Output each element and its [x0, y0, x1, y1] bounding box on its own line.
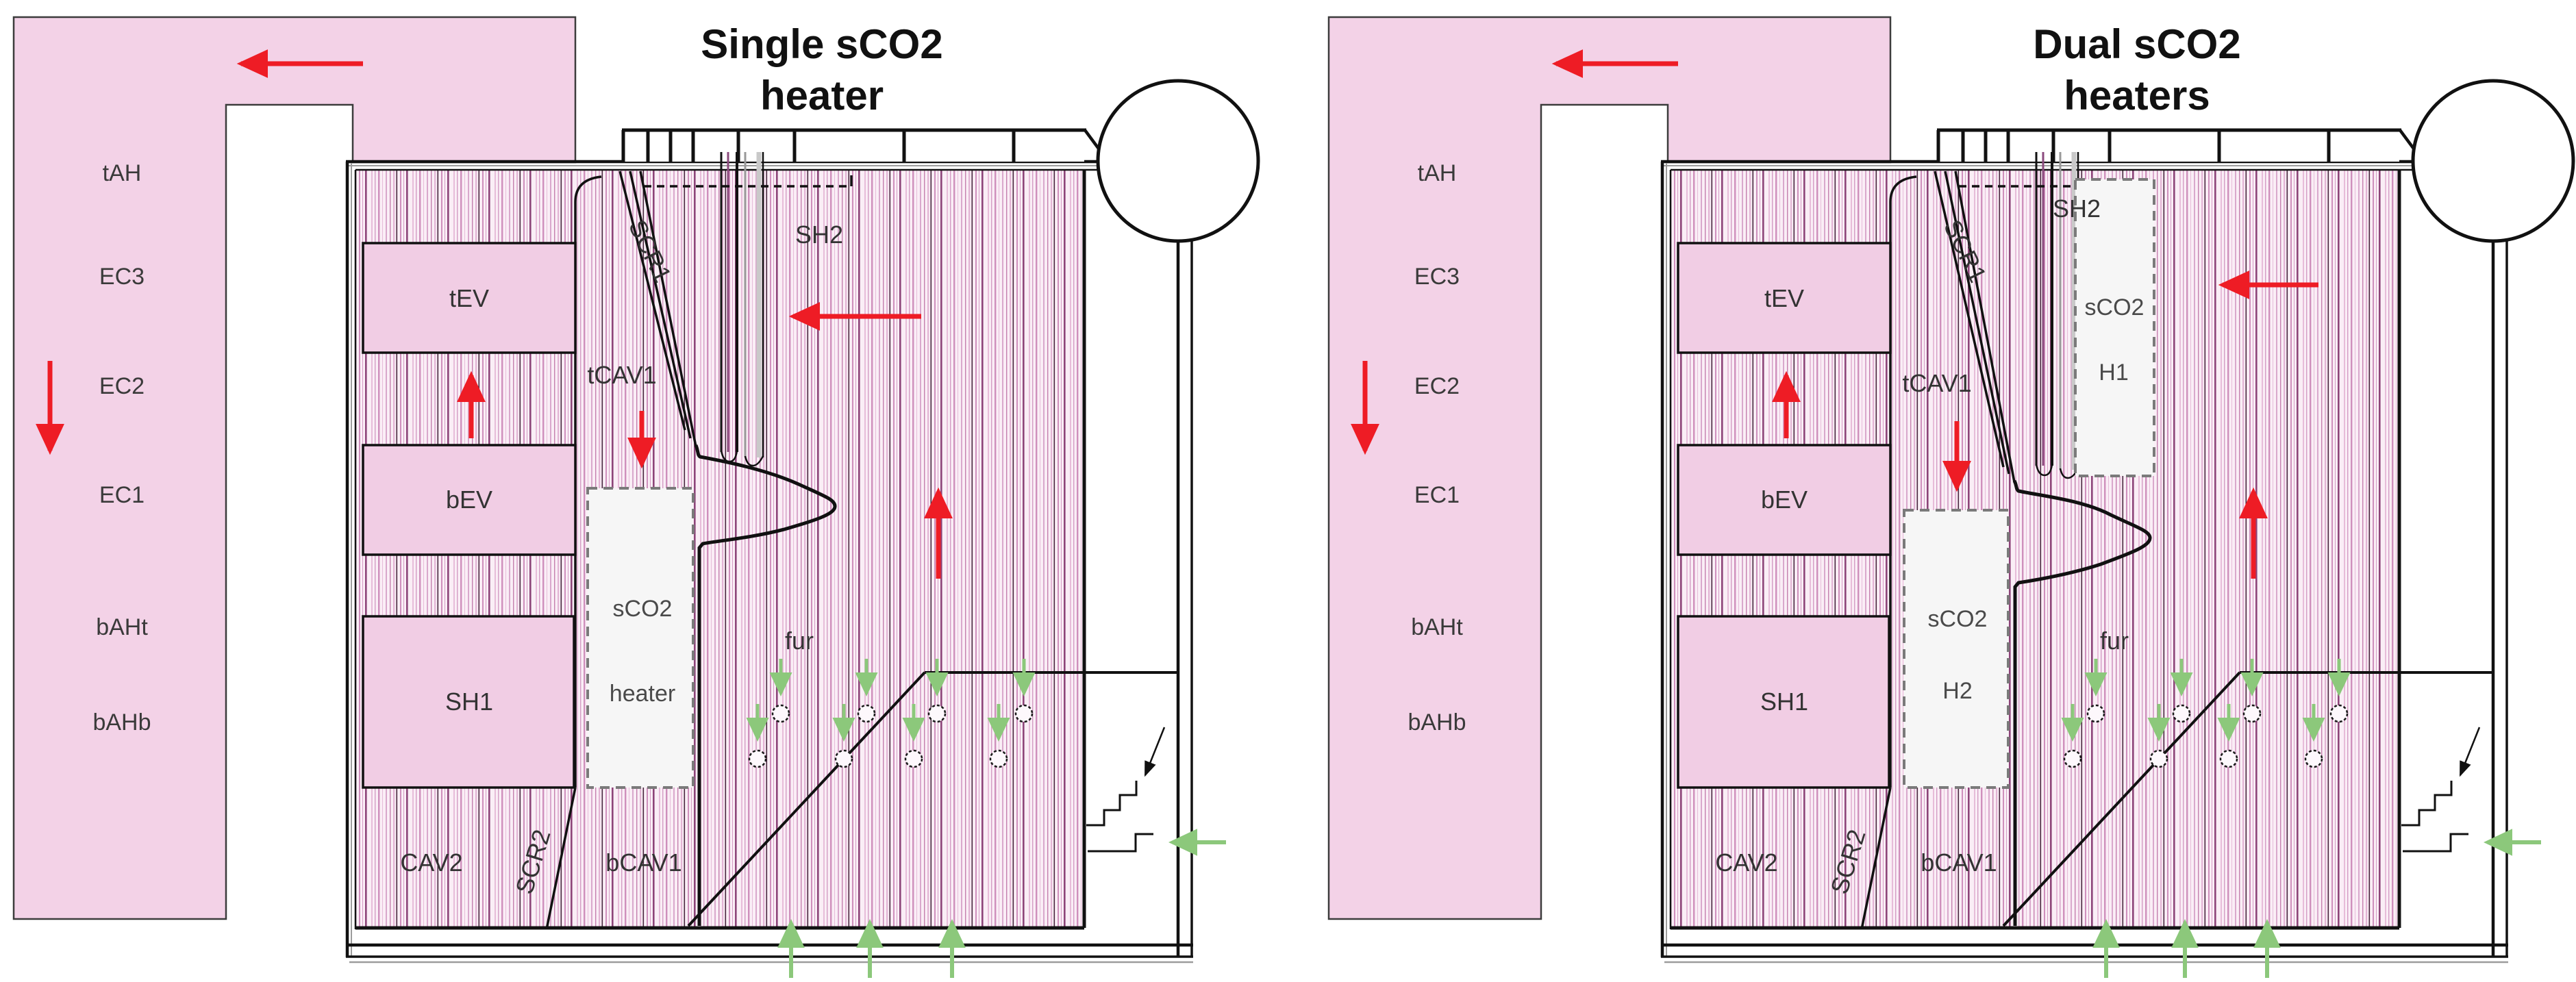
label-bahb: bAHb	[1408, 709, 1466, 735]
burner-circle	[905, 751, 922, 767]
label-tah: tAH	[103, 160, 142, 186]
label-ec2: EC2	[1414, 373, 1460, 399]
label-ec2: EC2	[99, 373, 145, 399]
label-tcav1: tCAV1	[587, 361, 656, 389]
diagram-title-line2: heater	[760, 73, 884, 118]
burner-circle	[836, 751, 852, 767]
label-ec3: EC3	[99, 264, 145, 290]
label-baht: bAHt	[96, 614, 148, 640]
sco2-heater-label-2: heater	[610, 681, 675, 707]
label-bcav1: bCAV1	[1921, 848, 1997, 877]
label-bahb: bAHb	[92, 709, 151, 735]
diagram-title-line1: Dual sCO2	[2033, 21, 2240, 67]
label-tah: tAH	[1418, 160, 1457, 186]
steam-drum	[2413, 81, 2573, 241]
burner-circle	[2305, 751, 2322, 767]
burner-circle	[990, 751, 1007, 767]
label-fur: fur	[2100, 627, 2129, 655]
burner-circle	[2244, 705, 2260, 722]
label-tcav1: tCAV1	[1902, 369, 1971, 397]
label-tev: tEV	[1764, 284, 1804, 312]
label-sh2: SH2	[795, 221, 843, 249]
label-cav2: CAV2	[1715, 848, 1777, 877]
sco2-h2-label-1: sCO2	[1928, 606, 1988, 632]
roof-header-manifold	[622, 130, 1108, 162]
boiler-comparison-figure: Single sCO2 heater tAH EC3 EC2 EC1 bAHt …	[0, 0, 2576, 982]
diagram-single-sco2-heater: Single sCO2 heater tAH EC3 EC2 EC1 bAHt …	[14, 17, 1258, 978]
burner-circle	[2173, 705, 2190, 722]
burner-circle	[749, 751, 766, 767]
label-baht: bAHt	[1411, 614, 1463, 640]
sco2-h1-label-2: H1	[2099, 360, 2128, 386]
sco2-heater-label-1: sCO2	[613, 596, 673, 622]
ash-step-structure	[2401, 727, 2541, 851]
label-cav2: CAV2	[400, 848, 462, 877]
burner-circle	[2151, 751, 2167, 767]
sco2-h2-label-2: H2	[1942, 678, 1972, 704]
burner-circle	[2331, 705, 2347, 722]
diagram-dual-sco2-heaters: Dual sCO2 heaters tAH EC3 EC2 EC1 bAHt b…	[1329, 17, 2573, 978]
burner-circle	[858, 705, 875, 722]
burner-circle	[773, 705, 789, 722]
underfire-air-arrows	[791, 923, 952, 978]
label-sh2: SH2	[2053, 194, 2101, 223]
ash-arrow	[2460, 727, 2479, 775]
sco2-h1-label-1: sCO2	[2085, 294, 2144, 320]
label-bcav1: bCAV1	[605, 848, 681, 877]
label-fur: fur	[785, 627, 814, 655]
label-ec1: EC1	[99, 482, 145, 508]
burner-circle	[2064, 751, 2081, 767]
ash-arrow	[1145, 727, 1164, 775]
label-ec3: EC3	[1414, 264, 1460, 290]
label-bev: bEV	[446, 486, 492, 514]
diagram-title-line1: Single sCO2	[701, 21, 942, 67]
burner-circle	[2088, 705, 2104, 722]
ash-step-structure	[1086, 727, 1226, 851]
label-ec1: EC1	[1414, 482, 1460, 508]
diagram-title-line2: heaters	[2064, 73, 2210, 118]
burner-circle	[1016, 705, 1032, 722]
burner-circle	[929, 705, 945, 722]
roof-header-manifold	[1937, 130, 2423, 162]
label-sh1: SH1	[1760, 688, 1808, 716]
sco2-h2-box	[1904, 510, 2008, 788]
steam-drum	[1098, 81, 1258, 241]
burner-circle	[2221, 751, 2237, 767]
label-tev: tEV	[449, 284, 489, 312]
label-bev: bEV	[1761, 486, 1808, 514]
underfire-air-arrows	[2106, 923, 2267, 978]
label-sh1: SH1	[445, 688, 493, 716]
sco2-heater-box	[588, 488, 693, 788]
sco2-h1-box	[2075, 179, 2154, 476]
